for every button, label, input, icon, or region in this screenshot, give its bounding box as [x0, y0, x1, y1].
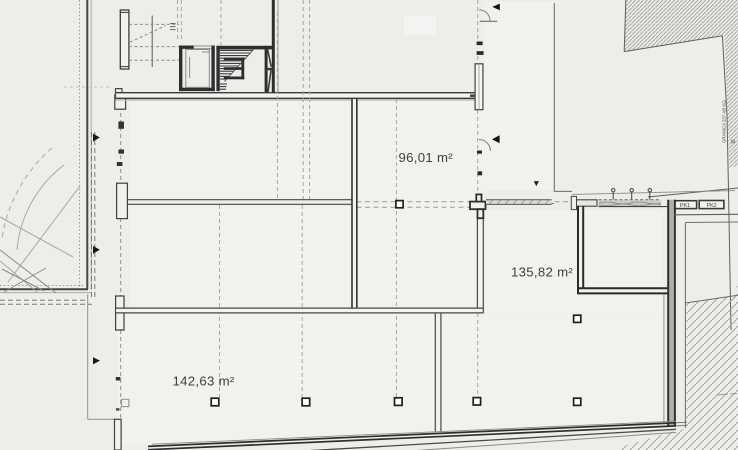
svg-text:96,01 m²: 96,01 m² [399, 150, 454, 165]
svg-text:PK2: PK2 [706, 203, 716, 209]
svg-text:142,63 m²: 142,63 m² [173, 373, 235, 388]
svg-text:PK1: PK1 [680, 203, 690, 209]
svg-text:135,82 m²: 135,82 m² [511, 265, 573, 280]
svg-text:GRANICA 237 AB KG: GRANICA 237 AB KG [722, 100, 727, 143]
